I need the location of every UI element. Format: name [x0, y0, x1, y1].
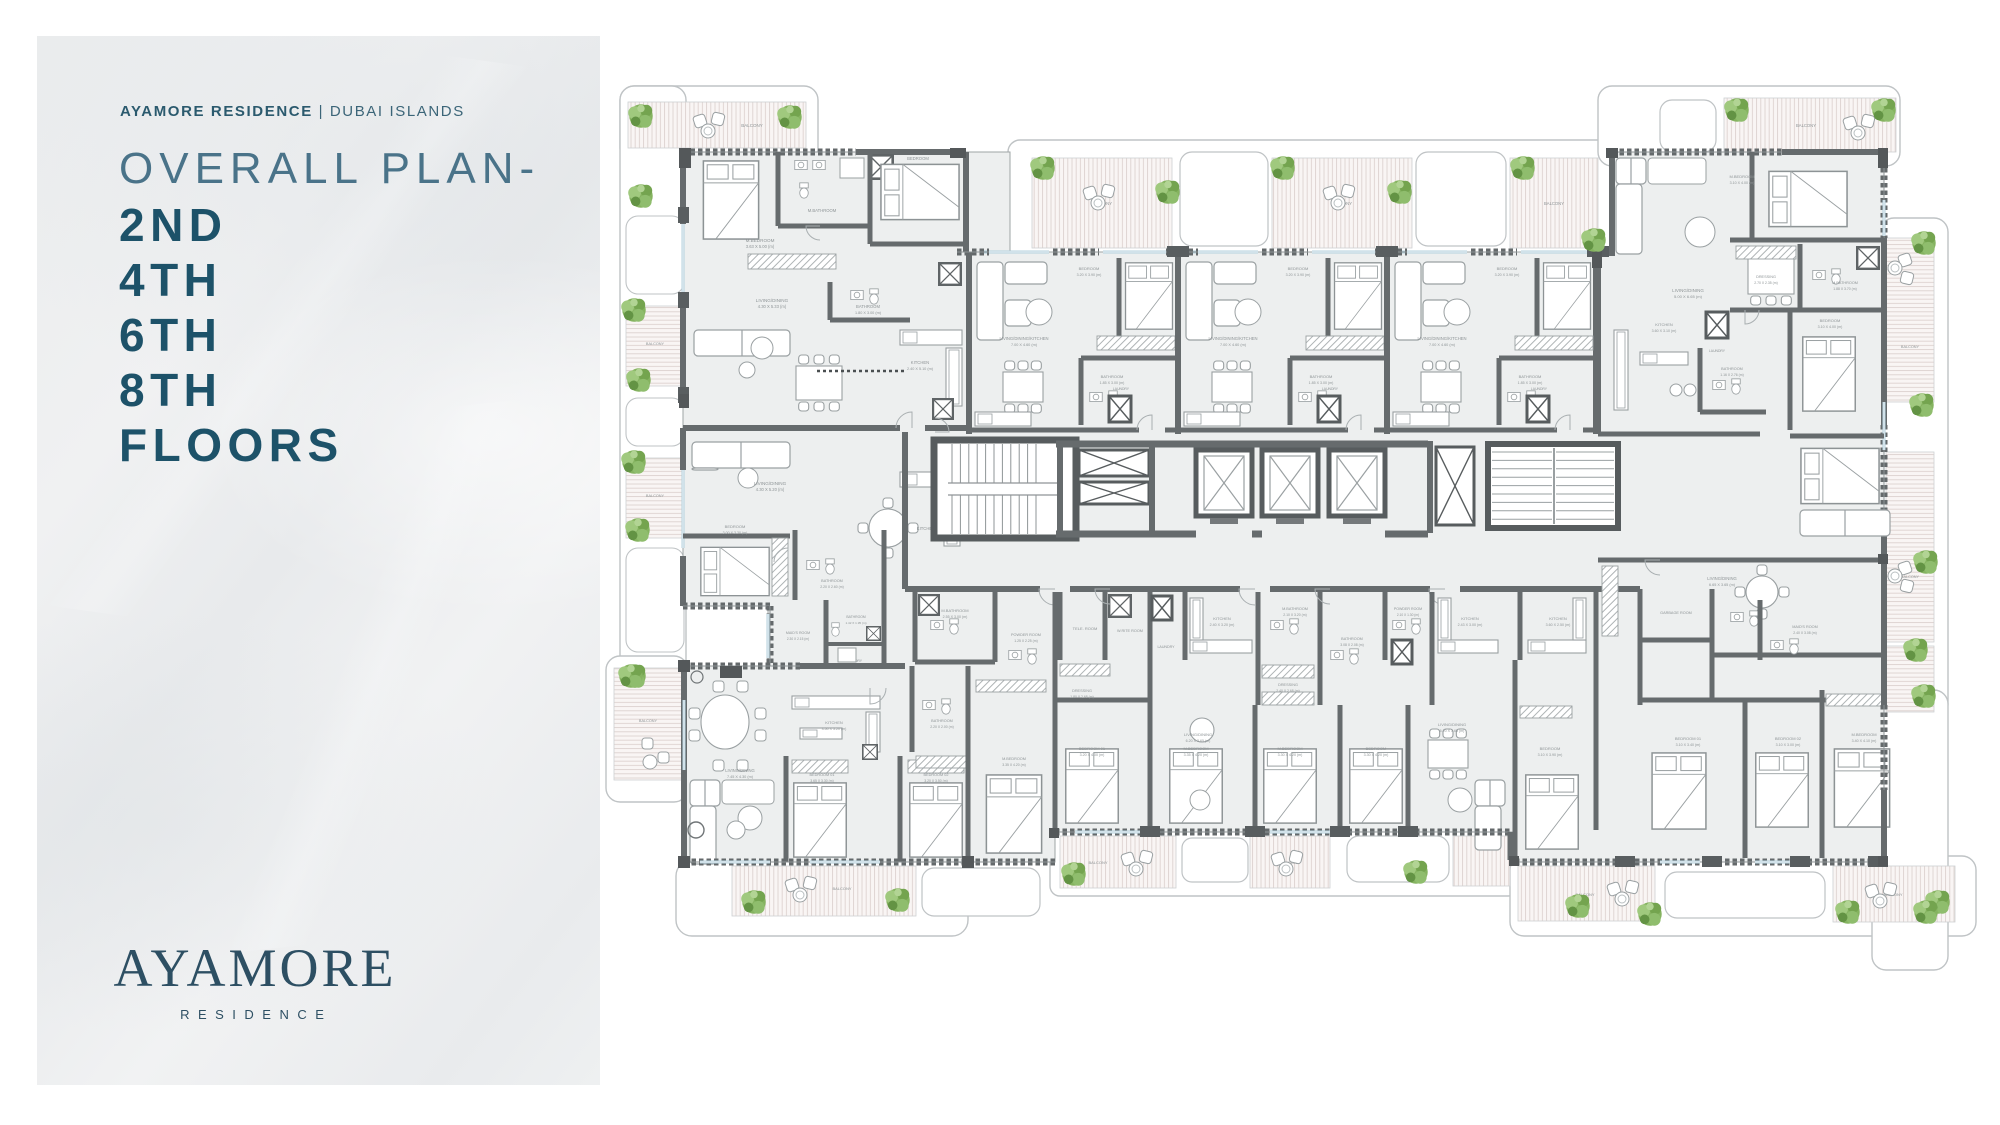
svg-text:DRESSING: DRESSING [1756, 275, 1776, 279]
svg-text:BEDROOM: BEDROOM [1366, 746, 1387, 751]
svg-text:LIVING/DINING/KITCHEN: LIVING/DINING/KITCHEN [1208, 336, 1257, 341]
svg-text:2.10 X 1.30 (m): 2.10 X 1.30 (m) [1397, 613, 1419, 617]
svg-text:3.10 X 3.40 (m): 3.10 X 3.40 (m) [1676, 743, 1701, 747]
svg-text:2.43 X 3.00 (m): 2.43 X 3.00 (m) [1458, 623, 1483, 627]
svg-text:2.40 X 3.20 (m): 2.40 X 3.20 (m) [1210, 623, 1235, 627]
svg-text:3.35 X 4.20 (m): 3.35 X 4.20 (m) [1184, 753, 1209, 757]
svg-text:M.BEDROOM: M.BEDROOM [1729, 174, 1754, 179]
svg-text:6.65 X 3.65 (m): 6.65 X 3.65 (m) [1709, 583, 1736, 587]
svg-text:LAUNDRY: LAUNDRY [1709, 349, 1726, 353]
svg-text:3.60 X 2.50 (m): 3.60 X 2.50 (m) [1546, 623, 1571, 627]
svg-text:BALCONY: BALCONY [1544, 201, 1564, 206]
svg-text:M.BEDROOM: M.BEDROOM [1002, 757, 1026, 761]
svg-text:1.85 X 3.00 (m): 1.85 X 3.00 (m) [1100, 381, 1125, 385]
svg-text:1.80 X 2.68 (m): 1.80 X 2.68 (m) [1070, 695, 1093, 699]
svg-text:LIVING/DINING: LIVING/DINING [1184, 732, 1212, 737]
svg-text:LIVING/DINING: LIVING/DINING [756, 298, 789, 303]
svg-text:5.00 X 6.65 (m): 5.00 X 6.65 (m) [1674, 294, 1703, 299]
svg-text:BATHROOM: BATHROOM [1341, 637, 1363, 641]
svg-text:BALCONY: BALCONY [639, 719, 658, 723]
svg-text:KITCHEN: KITCHEN [1213, 616, 1231, 621]
svg-text:3.50 X 3.20 (m): 3.50 X 3.20 (m) [822, 727, 847, 731]
svg-text:2.40 X 3.08 (m): 2.40 X 3.08 (m) [1793, 631, 1816, 635]
svg-text:KITCHEN: KITCHEN [825, 720, 843, 725]
svg-text:1.25 X 2.25 (m): 1.25 X 2.25 (m) [1014, 639, 1037, 643]
svg-text:BEDROOM 01: BEDROOM 01 [1079, 746, 1106, 751]
svg-text:BEDROOM: BEDROOM [1288, 266, 1309, 271]
svg-text:M.BATHROOM: M.BATHROOM [941, 608, 968, 613]
svg-text:3.20 X 3.90 (m): 3.20 X 3.90 (m) [1286, 273, 1311, 277]
svg-text:BEDROOM 02: BEDROOM 02 [924, 773, 949, 777]
svg-text:BATHROOM: BATHROOM [856, 304, 880, 309]
svg-text:3.40 X 4.10 (m): 3.40 X 4.10 (m) [1852, 739, 1877, 743]
svg-text:3.20 X 4.00 (m): 3.20 X 4.00 (m) [1080, 753, 1105, 757]
svg-text:BATHROOM: BATHROOM [1519, 374, 1542, 379]
svg-text:2.30 X 2.15 (m): 2.30 X 2.15 (m) [787, 637, 809, 641]
svg-text:6.20 X 3.65 (m): 6.20 X 3.65 (m) [1440, 729, 1465, 733]
svg-text:KITCHEN: KITCHEN [911, 360, 929, 365]
svg-text:BEDROOM 01: BEDROOM 01 [1675, 736, 1702, 741]
svg-text:7.00 X 4.60 (m): 7.00 X 4.60 (m) [1429, 343, 1456, 347]
svg-text:BEDROOM: BEDROOM [1820, 318, 1841, 323]
svg-text:3.00 X 3.30 (m): 3.00 X 3.30 (m) [723, 531, 748, 535]
svg-text:2.40 X 2.68 (m): 2.40 X 2.68 (m) [1276, 689, 1299, 693]
svg-text:W.RITE ROOM: W.RITE ROOM [1117, 629, 1143, 633]
svg-text:7.00 X 4.60 (m): 7.00 X 4.60 (m) [1220, 343, 1247, 347]
svg-text:7.00 X 4.60 (m): 7.00 X 4.60 (m) [1011, 343, 1038, 347]
svg-text:TELE. ROOM: TELE. ROOM [1073, 626, 1098, 631]
svg-text:BEDROOM: BEDROOM [1540, 746, 1561, 751]
svg-text:2.40 X 5.10 (m): 2.40 X 5.10 (m) [907, 367, 934, 371]
svg-text:1.85 X 3.00 (m): 1.85 X 3.00 (m) [1309, 381, 1334, 385]
svg-text:MAID'S ROOM: MAID'S ROOM [1792, 625, 1818, 629]
svg-text:4.30 X 5.33 (m): 4.30 X 5.33 (m) [758, 304, 787, 309]
svg-text:M.BATHROOM: M.BATHROOM [1832, 281, 1858, 285]
svg-text:KITCHEN: KITCHEN [1461, 616, 1479, 621]
svg-text:GARBAGE ROOM: GARBAGE ROOM [1660, 611, 1692, 615]
svg-text:BALCONY: BALCONY [1901, 575, 1920, 579]
svg-text:BALCONY: BALCONY [1088, 860, 1107, 865]
svg-text:3.63 X 5.00 (m): 3.63 X 5.00 (m) [746, 244, 775, 249]
svg-text:3.30 X 4.20 (m): 3.30 X 4.20 (m) [1364, 753, 1389, 757]
svg-text:BALCONY: BALCONY [1901, 345, 1920, 349]
svg-text:M.BEDROOM: M.BEDROOM [1183, 746, 1208, 751]
svg-text:LAUNDRY: LAUNDRY [1113, 387, 1130, 391]
svg-text:M.BEDROOM: M.BEDROOM [1277, 746, 1302, 751]
svg-text:3.20 X 3.90 (m): 3.20 X 3.90 (m) [1077, 273, 1102, 277]
svg-text:BALCONY: BALCONY [832, 886, 851, 891]
svg-text:DRESSING: DRESSING [1072, 689, 1092, 693]
svg-text:M.BATHROOM: M.BATHROOM [1282, 607, 1308, 611]
svg-text:7.45 X 4.30 (m): 7.45 X 4.30 (m) [727, 775, 754, 779]
svg-text:LIVING/DINING: LIVING/DINING [1707, 576, 1737, 581]
svg-text:3.10 X 4.00 (m): 3.10 X 4.00 (m) [1818, 325, 1843, 329]
svg-text:4.30 X 5.20 (m): 4.30 X 5.20 (m) [756, 487, 785, 492]
svg-text:BEDROOM: BEDROOM [1497, 266, 1518, 271]
svg-text:BEDROOM: BEDROOM [725, 524, 746, 529]
svg-text:BATHROOM: BATHROOM [931, 719, 953, 723]
svg-text:LAUNDRY: LAUNDRY [1157, 645, 1175, 649]
svg-text:3.10 X 3.90 (m): 3.10 X 3.90 (m) [1538, 753, 1563, 757]
svg-text:BEDROOM: BEDROOM [1079, 266, 1100, 271]
svg-text:1.80 X 3.00 (m): 1.80 X 3.00 (m) [855, 311, 882, 315]
svg-text:POWDER ROOM: POWDER ROOM [1394, 607, 1422, 611]
svg-text:BATHROOM: BATHROOM [1721, 367, 1743, 371]
svg-text:3.30 X 4.20 (m): 3.30 X 4.20 (m) [1278, 753, 1303, 757]
svg-text:BEDROOM 02: BEDROOM 02 [1775, 736, 1802, 741]
svg-text:DRESSING: DRESSING [1278, 683, 1298, 687]
svg-text:BEDROOM: BEDROOM [907, 156, 929, 161]
svg-text:2.55 X 3.00 (m): 2.55 X 3.00 (m) [943, 615, 968, 619]
svg-text:LIVING/DINING: LIVING/DINING [1672, 288, 1704, 293]
svg-text:BALCONY: BALCONY [1796, 123, 1816, 128]
svg-text:3.20 X 3.50 (m): 3.20 X 3.50 (m) [924, 779, 947, 783]
svg-text:KITCHEN: KITCHEN [1549, 616, 1567, 621]
svg-text:BEDROOM 01: BEDROOM 01 [810, 773, 835, 777]
svg-text:2.10 X 3.20 (m): 2.10 X 3.20 (m) [1283, 613, 1306, 617]
svg-text:3.08 X 2.08 (m): 3.08 X 2.08 (m) [1340, 643, 1363, 647]
svg-text:M.BEDROOM: M.BEDROOM [746, 238, 775, 243]
svg-text:3.35 X 4.20 (m): 3.35 X 4.20 (m) [1002, 763, 1025, 767]
svg-text:MAID'S ROOM: MAID'S ROOM [786, 631, 810, 635]
svg-text:M.BATHROOM: M.BATHROOM [808, 208, 837, 213]
svg-text:LIVING/DINING: LIVING/DINING [1438, 722, 1466, 727]
svg-text:1.42 X 1.95 (m): 1.42 X 1.95 (m) [846, 621, 867, 625]
svg-text:POWDER ROOM: POWDER ROOM [1011, 633, 1041, 637]
svg-text:3.10 X 4.00 (m): 3.10 X 4.00 (m) [1730, 181, 1755, 185]
svg-text:1.16 X 2.76 (m): 1.16 X 2.76 (m) [1720, 373, 1743, 377]
svg-text:6.20 X 3.65 (m): 6.20 X 3.65 (m) [1186, 739, 1211, 743]
svg-text:BATHROOM: BATHROOM [1101, 374, 1124, 379]
svg-text:2.20 X 2.00 (m): 2.20 X 2.00 (m) [930, 725, 953, 729]
svg-text:BALCONY: BALCONY [741, 123, 763, 128]
svg-text:3.20 X 3.90 (m): 3.20 X 3.90 (m) [1495, 273, 1520, 277]
svg-text:2.70 X 2.35 (m): 2.70 X 2.35 (m) [1754, 281, 1777, 285]
svg-text:BATHROOM: BATHROOM [821, 579, 843, 583]
svg-text:BALCONY: BALCONY [646, 494, 665, 498]
svg-text:LIVING/DINING/KITCHEN: LIVING/DINING/KITCHEN [1417, 336, 1466, 341]
svg-text:LIVING/DINING/KITCHEN: LIVING/DINING/KITCHEN [999, 336, 1048, 341]
svg-text:KITCHEN: KITCHEN [1655, 322, 1673, 327]
svg-text:LAUNDRY: LAUNDRY [1322, 387, 1339, 391]
svg-text:3.65 X 3.30 (m): 3.65 X 3.30 (m) [810, 779, 833, 783]
svg-text:1.88 X 3.70 (m): 1.88 X 3.70 (m) [1833, 287, 1856, 291]
svg-text:LIVING/DINING: LIVING/DINING [754, 481, 787, 486]
svg-text:2.20 X 2.60 (m): 2.20 X 2.60 (m) [820, 585, 843, 589]
svg-text:BATHROOM: BATHROOM [846, 615, 866, 619]
svg-text:BALCONY: BALCONY [646, 342, 665, 346]
svg-text:3.60 X 3.10 (m): 3.60 X 3.10 (m) [1652, 329, 1677, 333]
svg-text:LAUNDRY: LAUNDRY [1531, 387, 1548, 391]
svg-text:1.85 X 3.00 (m): 1.85 X 3.00 (m) [1518, 381, 1543, 385]
svg-text:3.10 X 3.00 (m): 3.10 X 3.00 (m) [1776, 743, 1801, 747]
svg-text:LIVING/DINING: LIVING/DINING [725, 768, 755, 773]
svg-text:BATHROOM: BATHROOM [1310, 374, 1333, 379]
svg-text:M.BEDROOM: M.BEDROOM [1851, 732, 1876, 737]
